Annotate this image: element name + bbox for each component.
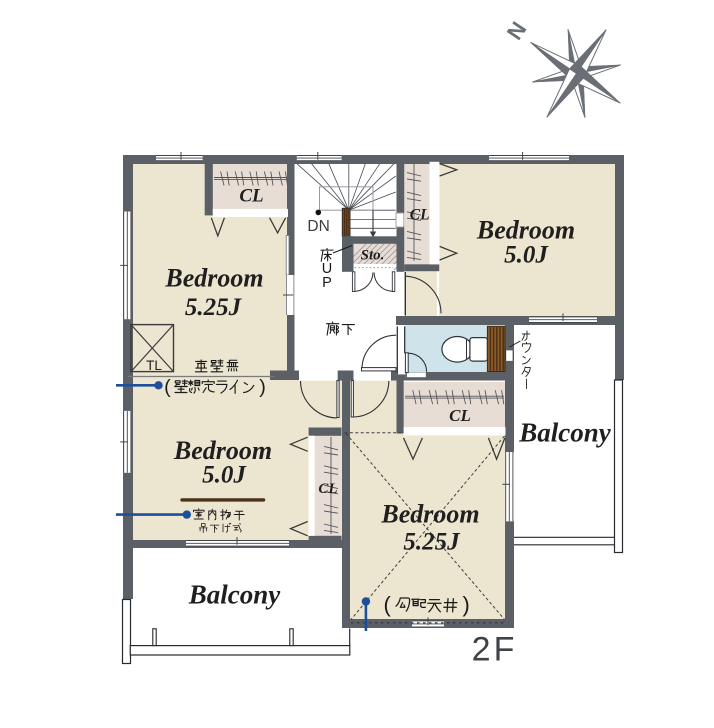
svg-text:P: P	[322, 275, 332, 291]
svg-text:): )	[259, 376, 266, 398]
svg-text:2F: 2F	[472, 631, 518, 669]
svg-text:CL: CL	[410, 207, 430, 224]
svg-text:Bedroom: Bedroom	[164, 264, 263, 293]
svg-text:TL: TL	[146, 358, 162, 373]
svg-text:Bedroom: Bedroom	[476, 216, 575, 245]
svg-text:CL: CL	[239, 185, 263, 206]
svg-text:CL: CL	[449, 406, 471, 425]
svg-text:Sto.: Sto.	[361, 248, 385, 264]
svg-text:Bedroom: Bedroom	[380, 500, 479, 529]
svg-text:): )	[462, 592, 469, 617]
svg-text:5.25J: 5.25J	[403, 529, 461, 556]
svg-text:Balcony: Balcony	[518, 418, 612, 448]
svg-text:5.0J: 5.0J	[202, 462, 247, 489]
svg-text:CL: CL	[318, 481, 337, 497]
svg-text:Balcony: Balcony	[188, 580, 282, 610]
svg-text:(: (	[164, 376, 171, 398]
svg-text:(: (	[383, 592, 391, 617]
svg-text:DN: DN	[307, 218, 329, 235]
svg-text:5.0J: 5.0J	[504, 242, 549, 269]
svg-text:5.25J: 5.25J	[185, 294, 243, 321]
